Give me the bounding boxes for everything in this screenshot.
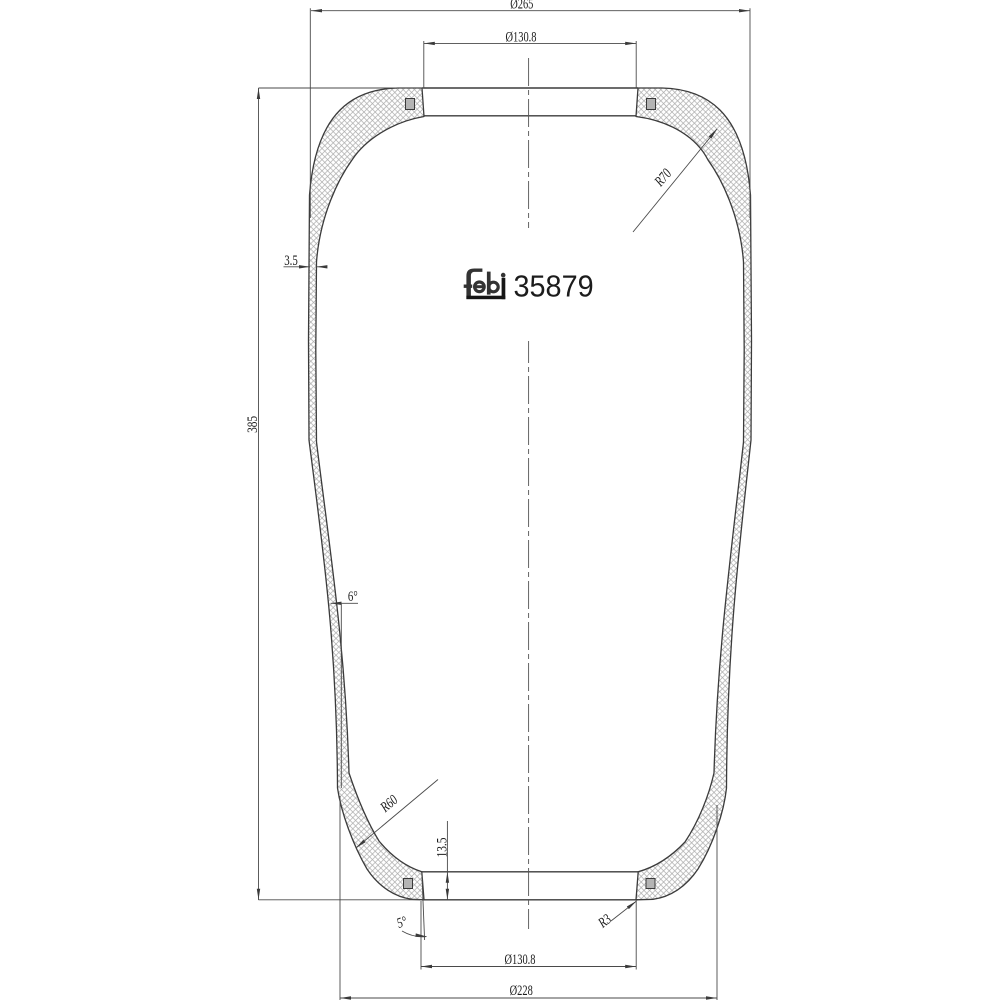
svg-text:Ø130.8: Ø130.8 [504, 952, 535, 968]
svg-text:Ø130.8: Ø130.8 [505, 29, 536, 45]
svg-text:Ø265: Ø265 [510, 0, 533, 12]
svg-text:Ø228: Ø228 [510, 983, 533, 999]
svg-text:R3: R3 [594, 911, 614, 931]
svg-text:385: 385 [244, 416, 261, 433]
svg-text:3.5: 3.5 [284, 253, 298, 269]
svg-text:5°: 5° [395, 913, 410, 931]
svg-text:35879: 35879 [514, 269, 594, 303]
svg-text:13.5: 13.5 [433, 838, 450, 858]
svg-text:6°: 6° [348, 589, 358, 605]
svg-text:R60: R60 [377, 792, 402, 816]
svg-text:R70: R70 [651, 165, 675, 190]
